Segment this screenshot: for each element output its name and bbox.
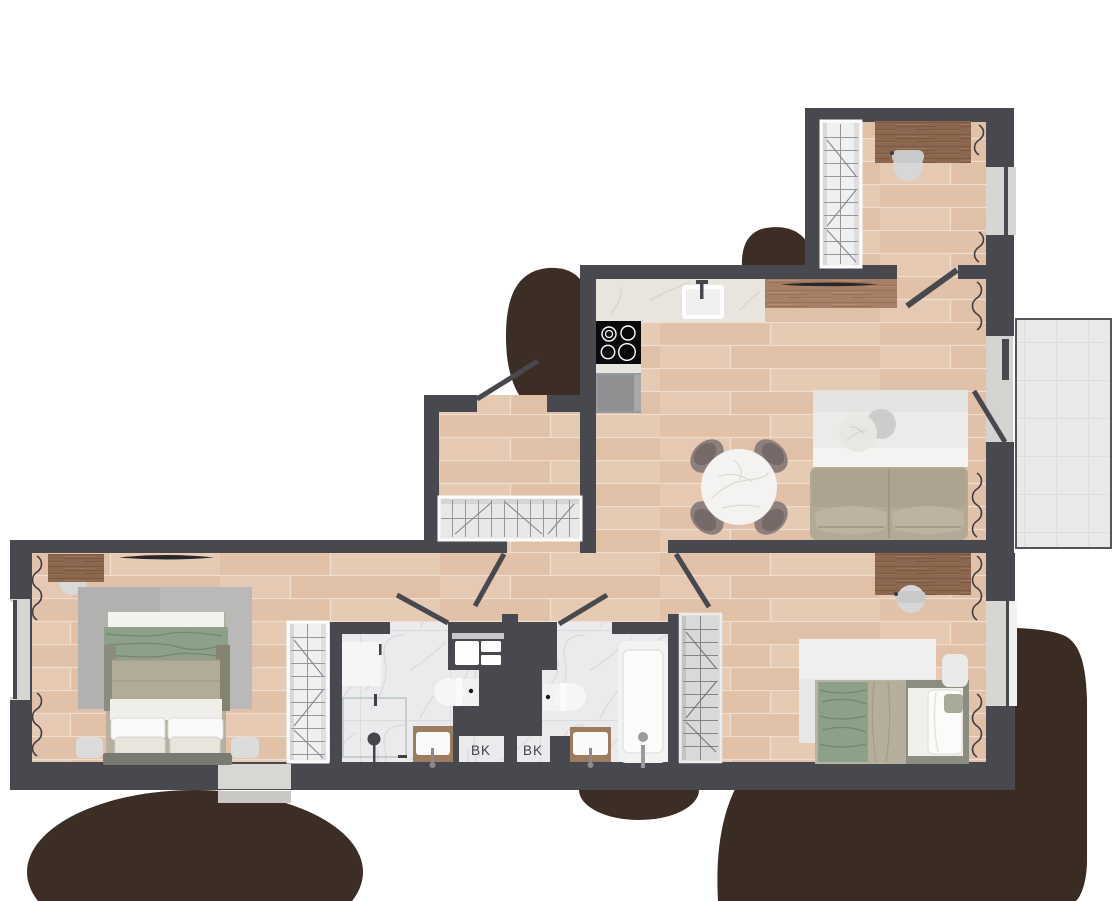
svg-text:BK: BK xyxy=(471,743,491,758)
svg-text:BK: BK xyxy=(523,743,543,758)
